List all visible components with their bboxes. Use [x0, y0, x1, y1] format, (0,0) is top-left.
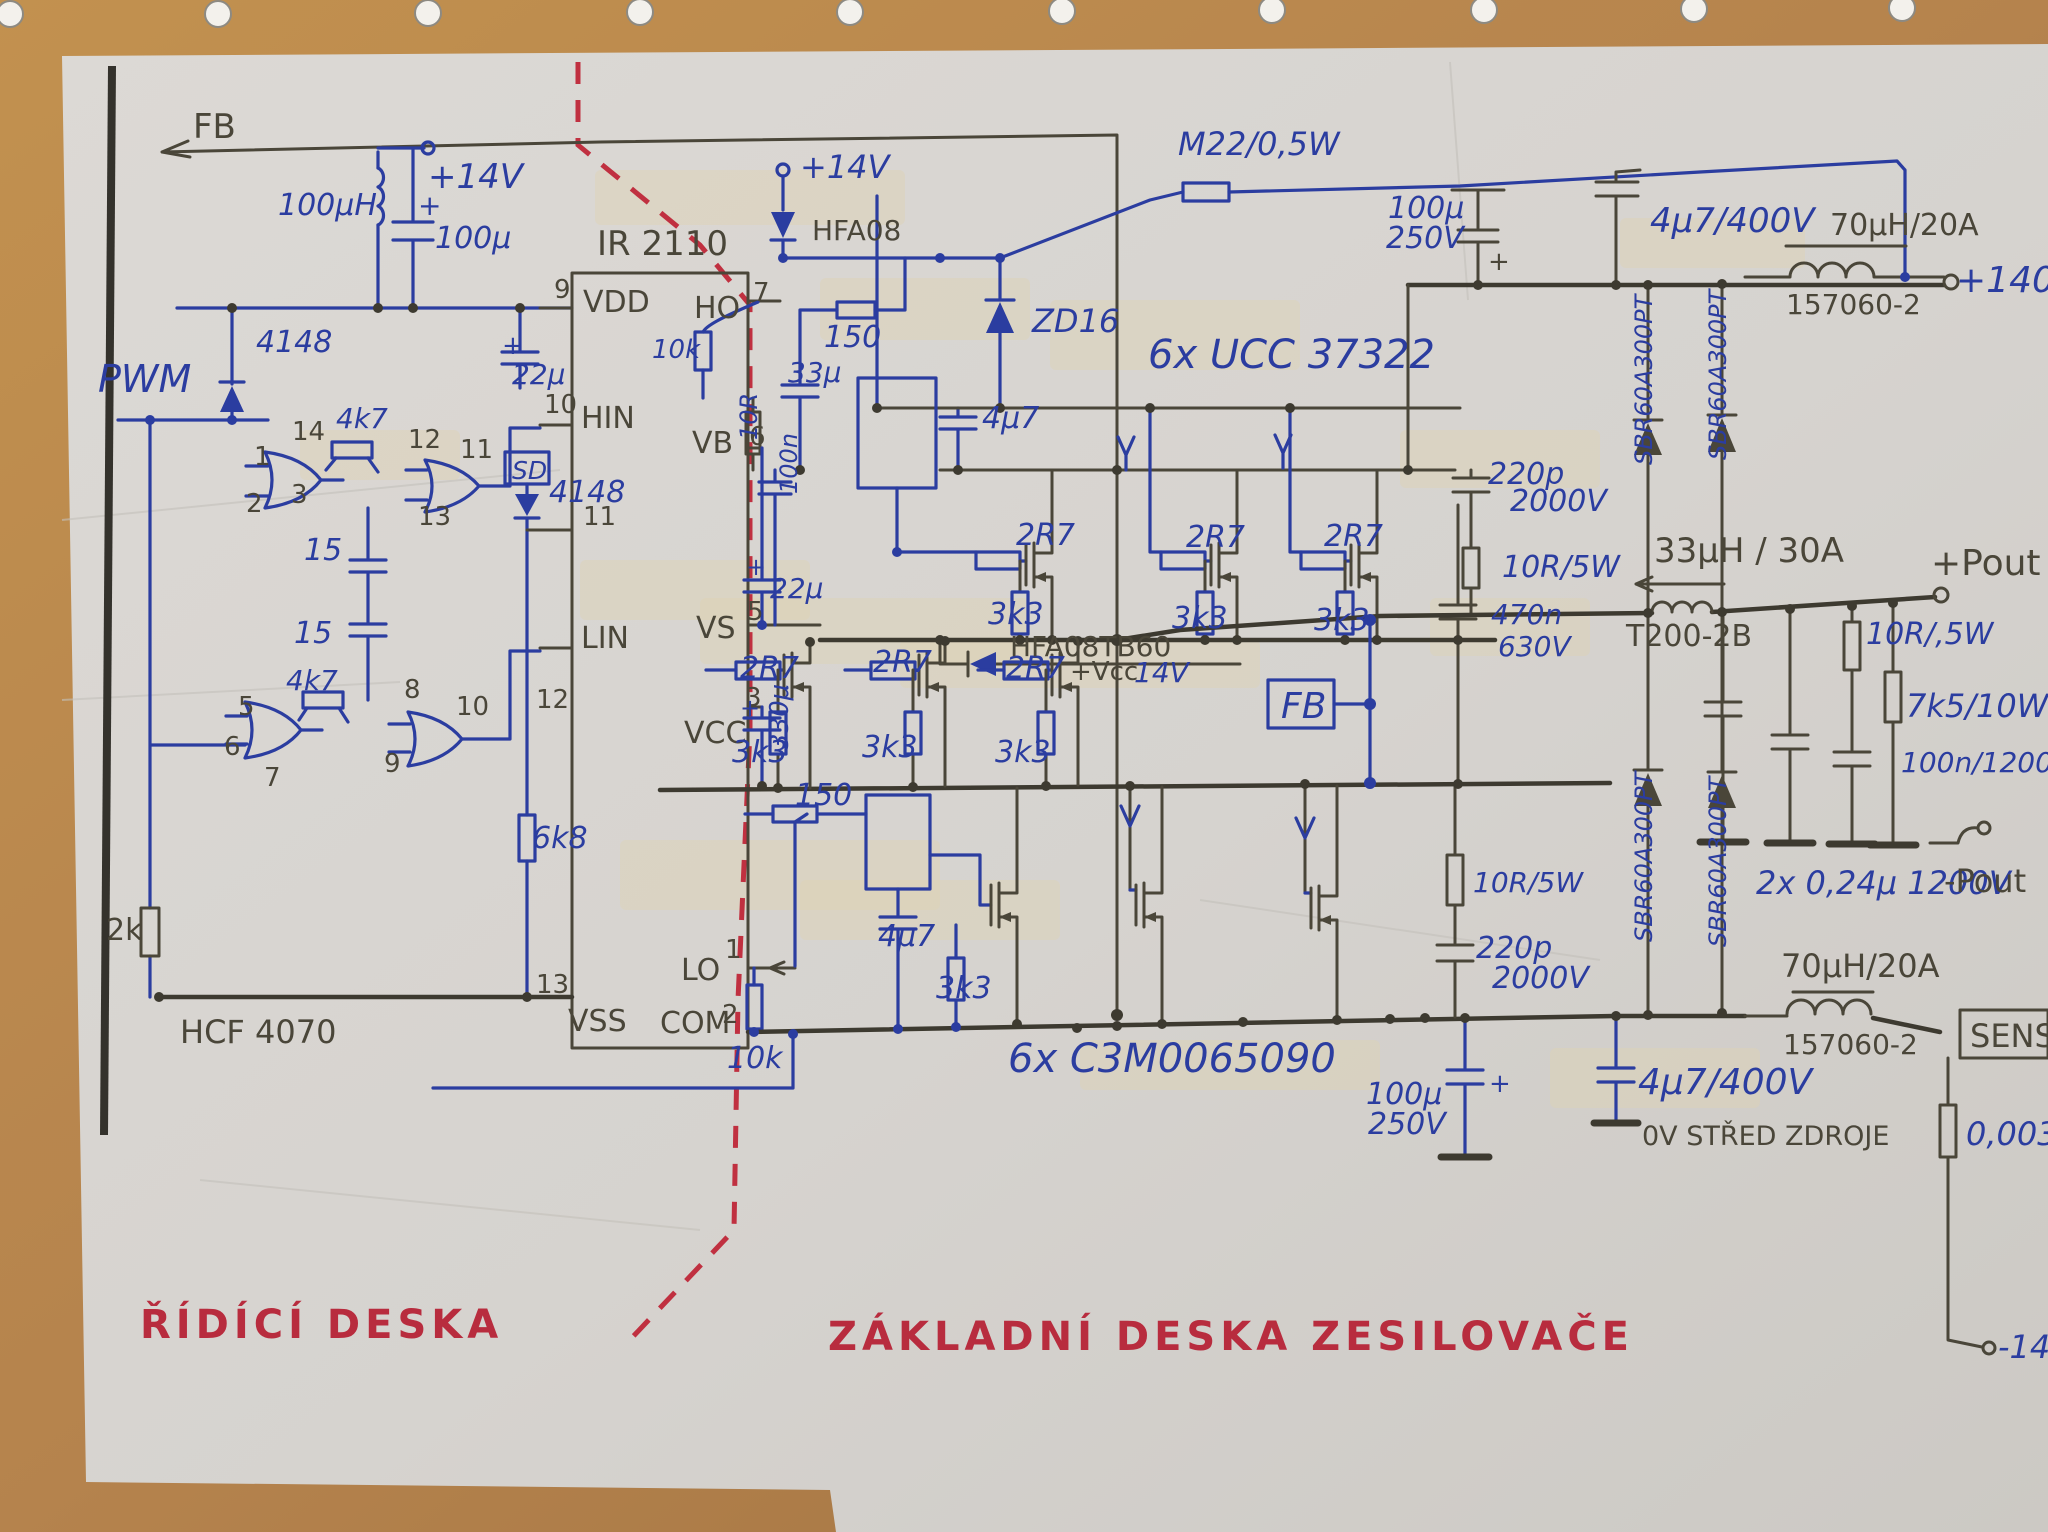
ic-pin-vss: VSS [568, 1004, 627, 1039]
cap-22u-vb-label: 22μ [770, 572, 823, 605]
cap-100n1200-label: 100n/1200V [1901, 746, 2048, 779]
cap-100u250-top-label2: 250V [1386, 221, 1466, 256]
ic-pin-vdd: VDD [583, 285, 650, 320]
sd-box-label: SD [512, 456, 547, 485]
cap-220p-top-label2: 2000V [1510, 484, 1609, 519]
fb-top-label: FB [193, 107, 236, 147]
plus-14v-left-label: +14V [428, 157, 526, 197]
cap-470n-label2: 630V [1498, 630, 1572, 663]
cap-470n-label1: 470n [1491, 598, 1562, 631]
zener-zd16-label: ZD16 [1031, 302, 1119, 340]
res-3k3-a1-label: 3k3 [988, 597, 1044, 632]
ic-pin11: 11 [583, 502, 616, 532]
res-10r5w-low-label: 10R/5W [1473, 866, 1584, 899]
ic-hcf4070-label: HCF 4070 [180, 1013, 336, 1051]
cap-100n-vert-label: 100n [775, 433, 803, 494]
res-3k3-b2-label: 3k3 [862, 730, 918, 765]
res-2r7-a3-label: 2R7 [1324, 519, 1383, 554]
control-board-title: ŘÍDÍCÍ DESKA [140, 1300, 503, 1348]
ic-ir2110-label: IR 2110 [597, 224, 728, 264]
ic-pin7: 7 [753, 278, 770, 308]
gate1-pin1: 1 [254, 442, 271, 472]
inductor-100uh-label: 100μH [278, 188, 377, 223]
res-2r7-a2-label: 2R7 [1186, 520, 1245, 555]
res-3k3-low-label: 3k3 [936, 971, 992, 1006]
ic-pin13: 13 [536, 970, 569, 1000]
pout-plus-label: +Pout [1931, 543, 2041, 584]
gate2-pin12: 12 [408, 425, 441, 455]
sbr-diode-label-1: SBR60A300PT [1630, 292, 1658, 465]
gate4-pin8: 8 [404, 675, 421, 705]
inductor-157060-bot-label: 157060-2 [1783, 1028, 1918, 1061]
gate1-pin2: 2 [246, 489, 263, 519]
gate4-pin10: 10 [456, 692, 489, 722]
cap-15-upper-label: 15 [304, 533, 342, 568]
inductor-157060-top-label: 157060-2 [1786, 288, 1921, 321]
ic-pin-com: COM [660, 1006, 730, 1041]
plus-sign-22u-vb: + [746, 553, 766, 581]
ic-pin-vb: VB [692, 426, 733, 461]
ic-pin10: 10 [544, 390, 577, 420]
res-10r-vert-label: 10R [735, 393, 763, 440]
vcc-plus-label: +Vcc [1070, 657, 1138, 687]
res-2k-label: 2k [106, 913, 143, 948]
res-2r7-b2-label: 2R7 [873, 645, 932, 680]
pwm-label: PWM [98, 357, 191, 401]
plus-sign-100u-bot: + [1489, 1069, 1511, 1099]
res-3k3-a2-label: 3k3 [1172, 601, 1228, 636]
inductor-70uh-bot-label: 70μH/20A [1781, 947, 1940, 985]
plus-14v-mid-label: +14V [800, 148, 892, 186]
res-150-low-label: 150 [795, 778, 852, 813]
res-7k5-label: 7k5/10W [1906, 687, 2048, 725]
ic-pin-ho: HO [694, 291, 740, 326]
res-150-top-label: 150 [824, 320, 881, 355]
cap-15-lower-label: 15 [294, 616, 332, 651]
ucc37322-label: 6x UCC 37322 [1148, 332, 1435, 378]
fb-box-label: FB [1281, 686, 1326, 727]
inductor-70uh-top-label: 70μH/20A [1830, 208, 1979, 243]
power-board-title: ZÁKLADNÍ DESKA ZESILOVAČE [828, 1312, 1634, 1360]
res-10r5w-top-label: 10R/5W [1502, 550, 1621, 585]
res-0003-label: 0,003 [1966, 1115, 2048, 1153]
gate3-pin5: 5 [238, 692, 255, 722]
gate1-pin14: 14 [292, 417, 325, 447]
ic-pin1: 1 [725, 935, 742, 965]
cap-100u250-bot-label2: 250V [1368, 1107, 1448, 1142]
res-3k3-a3-label: 3k3 [1314, 603, 1370, 638]
res-3k3-b3-label: 3k3 [995, 735, 1051, 770]
cap-4u7-400-bot-label: 4μ7/400V [1638, 1062, 1815, 1103]
res-10r-05w-label: 10R/,5W [1866, 617, 1995, 652]
cap-33u-label: 33μ [788, 356, 841, 389]
res-2r7-b1-label: 2R7 [740, 651, 799, 686]
res-2r7-a1-label: 2R7 [1016, 518, 1075, 553]
sbr-diode-label-3: SBR60A300PT [1630, 769, 1658, 942]
diode-hfa08-label: HFA08 [812, 214, 901, 247]
ic-pin-hin: HIN [581, 401, 635, 436]
minus-14-label: -14 [1998, 1328, 2048, 1366]
res-6k8-label: 6k8 [532, 821, 588, 856]
schematic-photo: FB100μH+14V+100μIR 2110+22μ4148PWM4k74k7… [0, 0, 2048, 1532]
sbr-diode-label-4: SBR60A300PT [1704, 774, 1732, 947]
ic-pin-lin: LIN [581, 621, 629, 656]
pout-minus-label: -Pout [1944, 862, 2026, 900]
plus-sign-22u-vdd: + [502, 331, 524, 361]
res-m22-label: M22/0,5W [1178, 125, 1341, 163]
cap-4u7-top-label: 4μ7 [982, 401, 1039, 436]
gate3-pin7: 7 [264, 763, 281, 793]
gate4-pin9: 9 [384, 749, 401, 779]
ic-pin9: 9 [554, 275, 571, 305]
cap-4u7-low-label: 4μ7 [878, 919, 935, 954]
vcc-14v-label: 14V [1134, 656, 1191, 689]
inductor-t200-label: T200-2B [1625, 619, 1752, 654]
gate1-pin3: 3 [291, 480, 308, 510]
plus-sign-100u-top: + [1488, 247, 1510, 277]
res-10k-bottom-label: 10k [727, 1041, 784, 1076]
sens-box-label: SENS [1970, 1017, 2048, 1055]
ic-pin12: 12 [536, 685, 569, 715]
gate2-pin13: 13 [418, 502, 451, 532]
ic-pin5: 5 [747, 597, 764, 627]
res-10k-ho-label: 10k [652, 335, 701, 365]
res-3k3-b1-label: 3k3 [732, 735, 788, 770]
plus-sign-100u-left: + [418, 189, 441, 222]
cap-22u-vdd-label: 22μ [512, 358, 565, 391]
cap-100u-left-label: 100μ [435, 221, 511, 256]
plus-140v-label: +140V [1956, 260, 2048, 301]
inductor-33uh-label: 33μH / 30A [1654, 531, 1844, 571]
diode-4148-pwm-label: 4148 [256, 325, 332, 360]
ov-stred-label: 0V STŘED ZDROJE [1642, 1120, 1889, 1152]
gate3-pin6: 6 [224, 732, 241, 762]
res-4k7-upper-label: 4k7 [336, 402, 388, 435]
ic-pin-lo: LO [681, 953, 720, 988]
gate2-pin11: 11 [460, 435, 493, 465]
cap-220p-low-label2: 2000V [1492, 961, 1591, 996]
plus-sign-330u: + [740, 694, 760, 722]
cap-4u7-400-top-label: 4μ7/400V [1650, 201, 1817, 241]
res-4k7-lower-label: 4k7 [286, 664, 338, 697]
c3m-label: 6x C3M0065090 [1008, 1036, 1336, 1082]
sbr-diode-label-2: SBR60A300PT [1704, 287, 1732, 460]
ic-pin-vs: VS [696, 611, 736, 646]
